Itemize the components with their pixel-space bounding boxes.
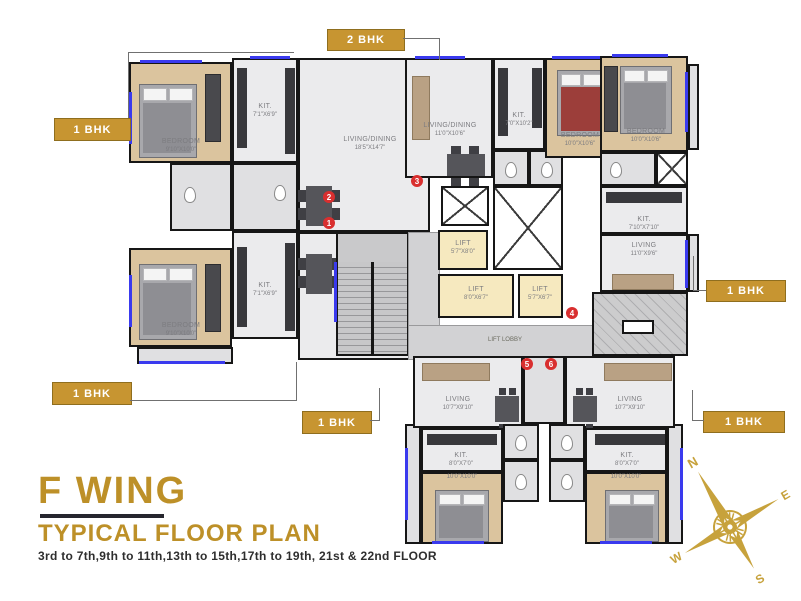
leader-line <box>128 52 294 53</box>
room-b5-bedroom <box>421 472 503 544</box>
room-tl-kitchen <box>232 58 298 163</box>
staircase <box>336 232 409 356</box>
pillow-icon <box>143 268 167 281</box>
chair-icon <box>509 388 516 395</box>
room-m-kitchen <box>493 58 545 150</box>
leader-line <box>130 400 297 401</box>
leader-line <box>128 52 129 118</box>
chair-icon <box>298 190 306 202</box>
duct-shaft <box>441 186 489 226</box>
room-bath <box>549 460 585 502</box>
compass-e: E <box>778 487 792 503</box>
window-icon <box>139 361 225 364</box>
toilet-icon <box>184 187 196 203</box>
chair-icon <box>451 146 461 154</box>
window-icon <box>129 275 132 327</box>
leader-line <box>296 362 297 401</box>
chair-icon <box>586 388 593 395</box>
sofa-icon <box>422 363 490 381</box>
room-bl-kitchen <box>232 231 298 339</box>
toilet-icon <box>515 474 527 490</box>
window-icon <box>140 60 202 63</box>
pillow-icon <box>609 494 631 505</box>
lift-lobby <box>408 325 604 360</box>
leader-line <box>379 388 380 421</box>
room-tr-living <box>600 234 688 292</box>
leader-line <box>439 38 440 60</box>
chair-icon <box>469 178 479 186</box>
room-bath <box>170 163 232 231</box>
window-icon <box>334 262 337 322</box>
window-icon <box>685 72 688 132</box>
duct-shaft <box>493 186 563 270</box>
window-icon <box>250 56 290 59</box>
wing-title: F WING <box>38 470 187 513</box>
stair-divider-icon <box>371 262 374 354</box>
dining-table-icon <box>495 396 519 422</box>
kitchen-counter-icon <box>285 68 295 154</box>
room-bl-bedroom <box>129 248 232 347</box>
unit-label-1bhk-bottom-center: 1 BHK <box>302 411 372 434</box>
flat-number-badge: 6 <box>545 358 557 370</box>
bed-icon <box>139 264 197 340</box>
leader-line <box>692 390 693 421</box>
unit-label-1bhk-bottom-left: 1 BHK <box>52 382 132 405</box>
lift-3 <box>518 274 563 318</box>
terrace-opening-icon <box>622 320 654 334</box>
window-icon <box>432 541 484 544</box>
kitchen-counter-icon <box>498 68 508 136</box>
room-b6-living <box>565 356 675 428</box>
wardrobe-icon <box>604 66 618 132</box>
pillow-icon <box>169 88 193 101</box>
dining-table-icon <box>573 396 597 422</box>
blanket-icon <box>609 506 653 538</box>
bed-icon <box>139 84 197 158</box>
chair-icon <box>298 276 306 288</box>
room-b5-living <box>413 356 523 428</box>
pillow-icon <box>143 88 167 101</box>
toilet-icon <box>274 185 286 201</box>
flat-number-badge: 2 <box>323 191 335 203</box>
chair-icon <box>469 146 479 154</box>
terrace <box>592 292 688 356</box>
leader-line <box>692 420 704 421</box>
compass-s: S <box>753 571 767 587</box>
sofa-icon <box>612 274 674 290</box>
room-bath <box>232 163 298 231</box>
flat-number-badge: 1 <box>323 217 335 229</box>
chair-icon <box>298 258 306 270</box>
chair-icon <box>451 178 461 186</box>
toilet-icon <box>541 162 553 178</box>
room-bath <box>600 152 656 186</box>
lift-2 <box>438 274 514 318</box>
window-icon <box>552 56 600 59</box>
unit-label-1bhk-left: 1 BHK <box>54 118 131 141</box>
pillow-icon <box>463 494 485 505</box>
room-tl-bedroom <box>129 62 232 163</box>
corridor <box>408 232 440 328</box>
window-icon <box>612 54 668 57</box>
dining-table-icon <box>306 254 332 294</box>
pillow-icon <box>561 74 581 86</box>
blanket-icon <box>143 103 191 153</box>
room-bath <box>549 424 585 460</box>
kitchen-counter-icon <box>595 434 665 445</box>
wardrobe-icon <box>205 74 221 142</box>
bed-icon <box>435 490 489 542</box>
bed-icon <box>620 66 672 134</box>
room-bath <box>503 460 539 502</box>
lift-1 <box>438 230 488 270</box>
window-icon <box>685 240 688 288</box>
chair-icon <box>298 208 306 220</box>
dining-table-icon <box>447 154 485 176</box>
room-b6-bedroom <box>585 472 667 544</box>
unit-label-2bhk: 2 BHK <box>327 29 405 51</box>
pillow-icon <box>169 268 193 281</box>
blanket-icon <box>561 87 601 131</box>
leader-line <box>403 38 440 39</box>
room-tr-bedroom <box>600 56 688 152</box>
toilet-icon <box>561 474 573 490</box>
duct-shaft <box>656 152 688 186</box>
balcony <box>688 64 699 150</box>
pillow-icon <box>647 70 668 82</box>
room-bath <box>503 424 539 460</box>
compass-w: W <box>668 549 685 567</box>
sofa-icon <box>604 363 672 381</box>
kitchen-counter-icon <box>427 434 497 445</box>
blanket-icon <box>143 283 191 335</box>
kitchen-counter-icon <box>285 243 295 331</box>
bed-icon <box>605 490 659 542</box>
toilet-icon <box>610 162 622 178</box>
kitchen-counter-icon <box>532 68 542 128</box>
flat-number-badge: 3 <box>411 175 423 187</box>
flat-number-badge: 4 <box>566 307 578 319</box>
room-bath <box>493 150 529 186</box>
kitchen-counter-icon <box>237 68 247 148</box>
room-b6-kitchen <box>585 428 667 472</box>
toilet-icon <box>561 435 573 451</box>
wardrobe-icon <box>205 264 221 332</box>
title-underline <box>40 514 164 518</box>
compass-rose: N E S W <box>658 445 800 601</box>
chair-icon <box>499 388 506 395</box>
pillow-icon <box>439 494 461 505</box>
window-icon <box>405 448 408 520</box>
flat-number-badge: 5 <box>521 358 533 370</box>
floor-plan-canvas: BEDROOM 9'10"X10'0" KIT. 7'1"X6'9" LIVIN… <box>0 0 801 601</box>
leader-line <box>693 256 694 290</box>
blanket-icon <box>439 506 483 538</box>
floors-subtitle: 3rd to 7th,9th to 11th,13th to 15th,17th… <box>38 549 437 563</box>
toilet-icon <box>505 162 517 178</box>
pillow-icon <box>624 70 645 82</box>
window-icon <box>415 56 465 59</box>
compass-n: N <box>685 454 701 472</box>
room-tr-kitchen <box>600 186 688 234</box>
blanket-icon <box>624 83 666 129</box>
plan-type-title: TYPICAL FLOOR PLAN <box>38 520 321 548</box>
toilet-icon <box>515 435 527 451</box>
unit-label-1bhk-right-bottom: 1 BHK <box>703 411 785 433</box>
sofa-icon <box>412 76 430 140</box>
leader-line <box>693 290 706 291</box>
unit-label-1bhk-right-top: 1 BHK <box>706 280 786 302</box>
chair-icon <box>576 388 583 395</box>
kitchen-counter-icon <box>237 247 247 327</box>
pillow-icon <box>633 494 655 505</box>
room-b5-kitchen <box>421 428 503 472</box>
room-m-living <box>405 58 493 178</box>
window-icon <box>600 541 652 544</box>
kitchen-counter-icon <box>606 192 682 203</box>
